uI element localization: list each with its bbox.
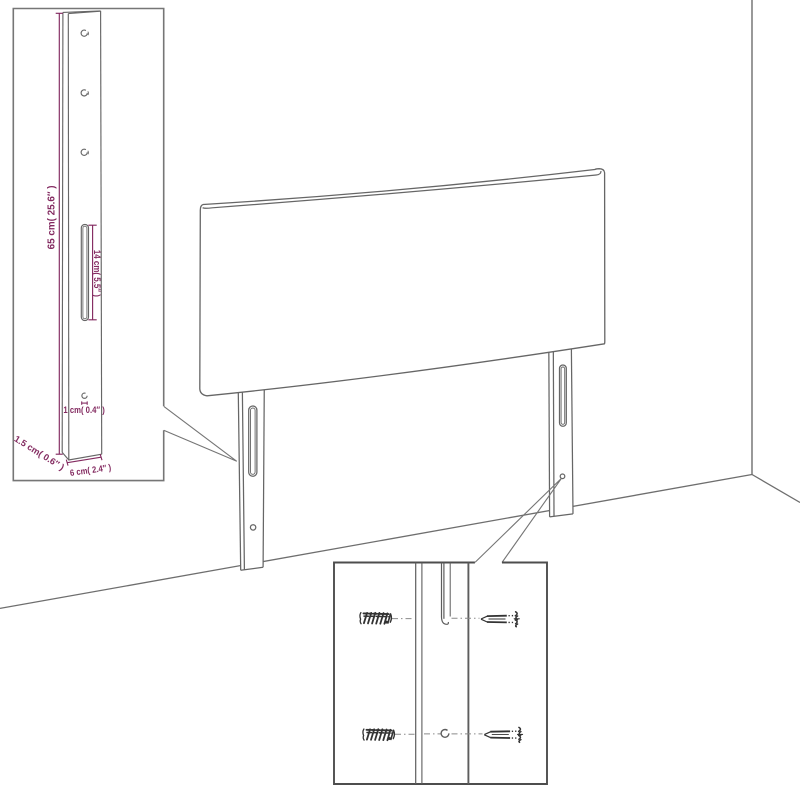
svg-text:1 cm( 0.4″ ): 1 cm( 0.4″ ) [63, 405, 104, 415]
svg-text:65 cm( 25.6″ ): 65 cm( 25.6″ ) [46, 185, 57, 249]
svg-text:14 cm( 5.5″ ): 14 cm( 5.5″ ) [92, 250, 102, 297]
